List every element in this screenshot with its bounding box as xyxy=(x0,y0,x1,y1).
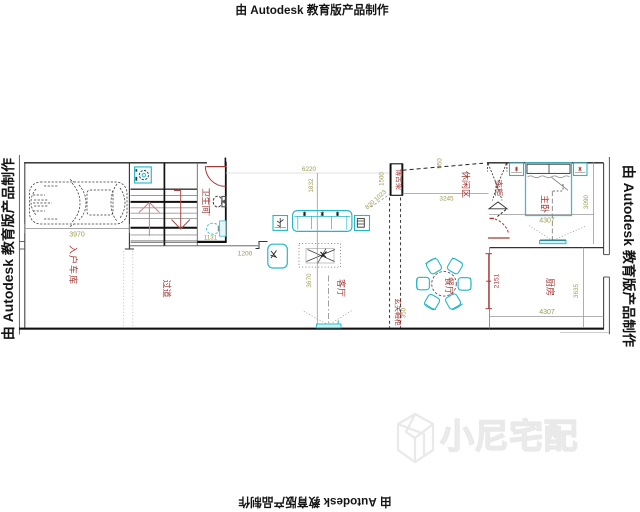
svg-text:4307: 4307 xyxy=(539,218,555,225)
svg-text:主卧: 主卧 xyxy=(540,195,551,213)
svg-text:1500: 1500 xyxy=(379,172,386,186)
svg-text:350: 350 xyxy=(401,307,408,318)
svg-text:由 Autodesk 教育版产品制作: 由 Autodesk 教育版产品制作 xyxy=(235,3,389,17)
svg-text:1131: 1131 xyxy=(204,234,218,241)
svg-text:3970: 3970 xyxy=(69,232,85,239)
svg-text:客厅: 客厅 xyxy=(336,279,347,297)
svg-text:博古架: 博古架 xyxy=(394,169,403,190)
svg-text:4307: 4307 xyxy=(539,309,555,316)
svg-text:3090: 3090 xyxy=(583,194,590,209)
svg-text:3245: 3245 xyxy=(439,196,454,203)
svg-text:2151: 2151 xyxy=(494,273,501,288)
svg-text:小尼宅配: 小尼宅配 xyxy=(440,417,578,456)
svg-text:餐厅: 餐厅 xyxy=(444,277,455,295)
svg-text:卫生间: 卫生间 xyxy=(201,188,211,214)
svg-text:由 Autodesk 教育版产品制作: 由 Autodesk 教育版产品制作 xyxy=(238,495,392,509)
svg-text:950: 950 xyxy=(437,158,444,169)
svg-text:入户车库: 入户车库 xyxy=(68,245,79,285)
svg-text:休闲区: 休闲区 xyxy=(461,171,472,198)
svg-text:过道: 过道 xyxy=(162,280,173,298)
svg-text:由 Autodesk 教育版产品制作: 由 Autodesk 教育版产品制作 xyxy=(0,158,16,340)
svg-text:由 Autodesk 教育版产品制作: 由 Autodesk 教育版产品制作 xyxy=(621,165,637,347)
svg-text:衣柜: 衣柜 xyxy=(494,179,504,197)
svg-text:厨房: 厨房 xyxy=(545,278,556,296)
svg-text:3635: 3635 xyxy=(573,283,580,298)
svg-text:1832: 1832 xyxy=(308,178,315,193)
svg-text:3670: 3670 xyxy=(306,273,313,288)
svg-text:6220: 6220 xyxy=(302,166,317,173)
svg-text:1200: 1200 xyxy=(238,251,253,258)
